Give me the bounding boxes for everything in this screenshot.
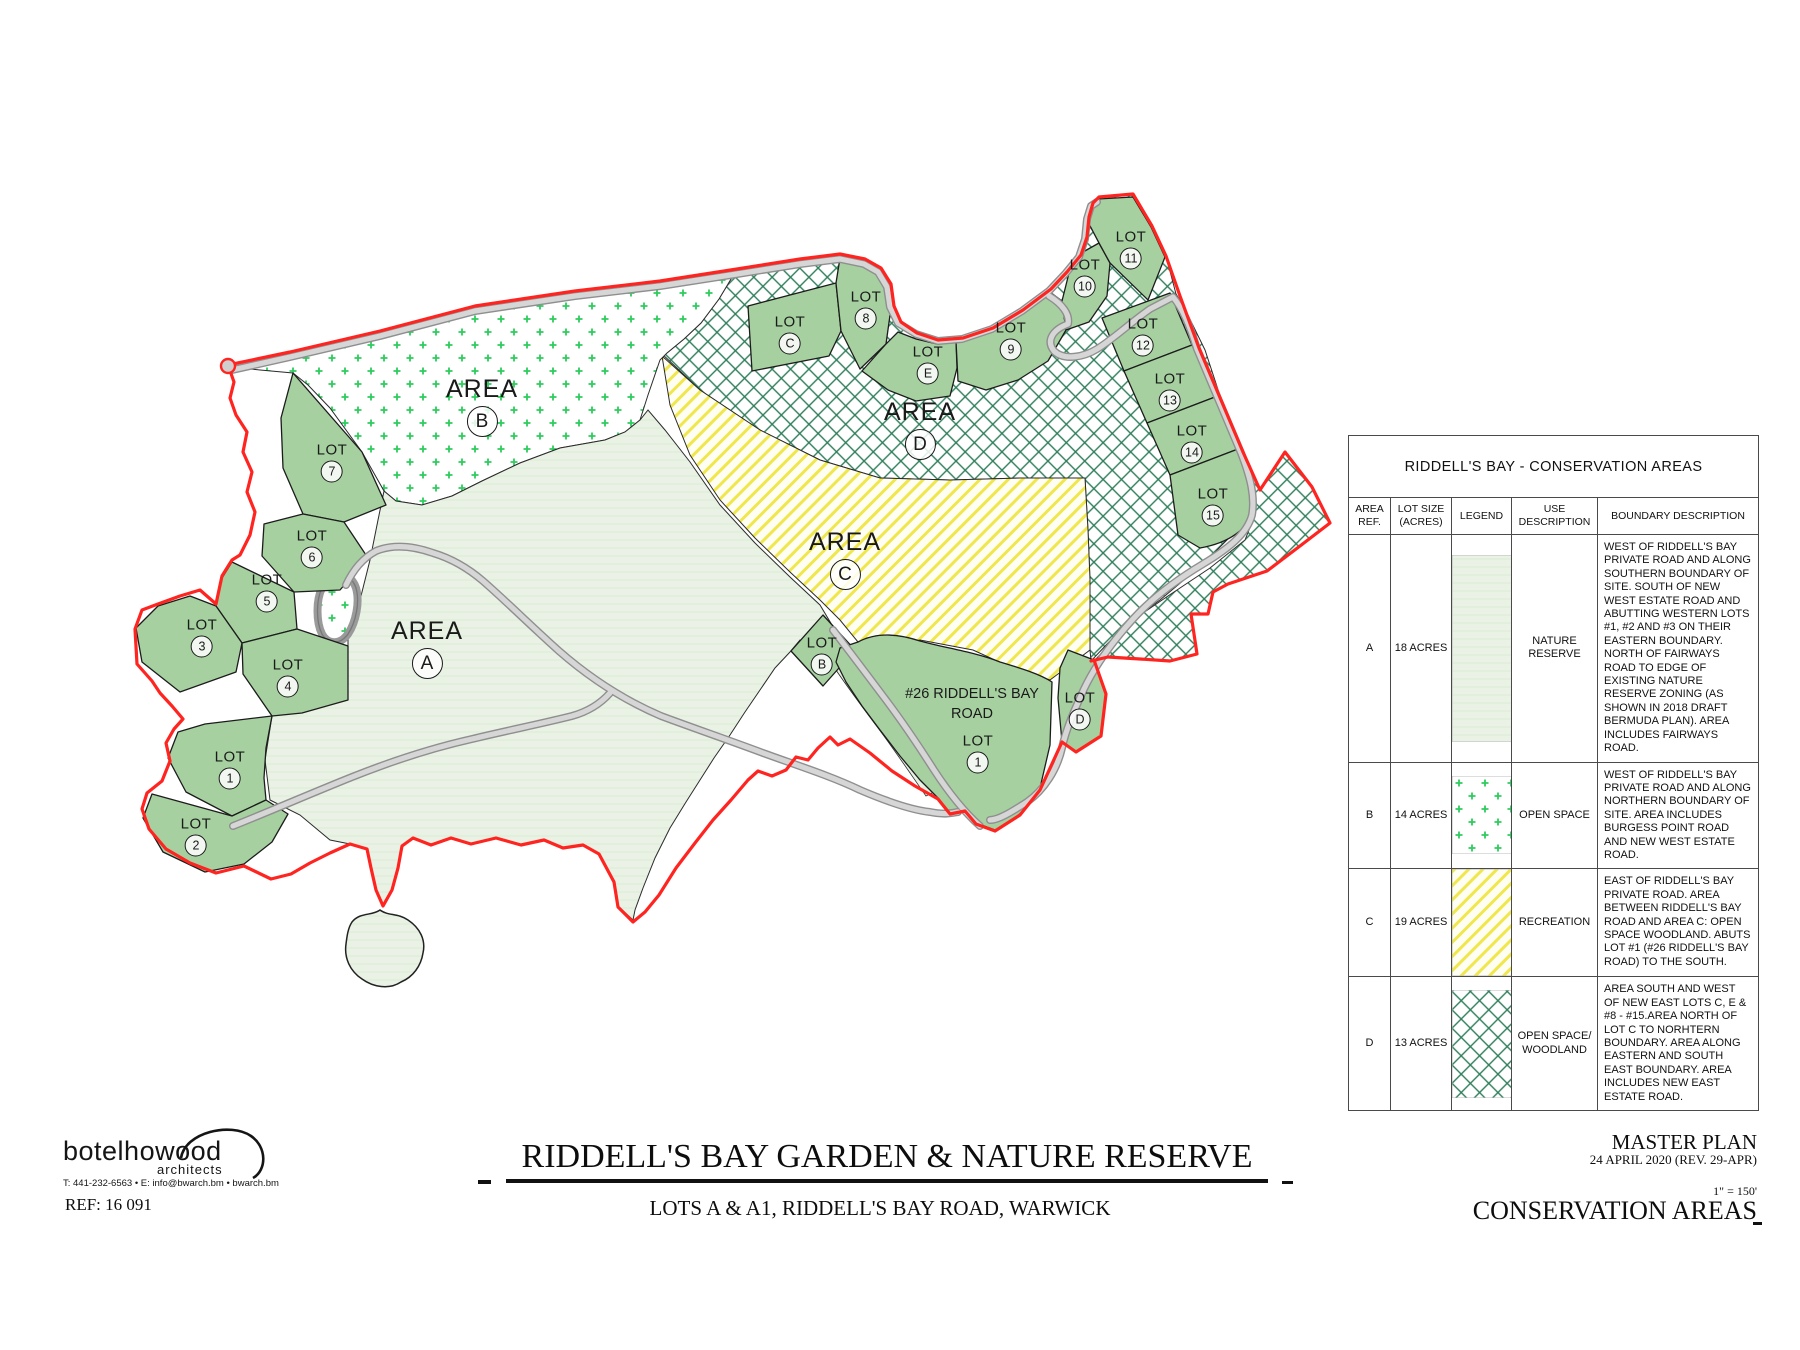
table-header-2: LEGEND <box>1452 498 1512 534</box>
firm-discipline: architects <box>157 1162 223 1177</box>
legend-swatch-open-space <box>1452 776 1511 854</box>
cell-ref: A <box>1349 535 1391 762</box>
cell-ref: D <box>1349 977 1391 1110</box>
cell-legend <box>1452 977 1512 1110</box>
island <box>346 910 424 987</box>
cell-legend <box>1452 763 1512 869</box>
table-row-D: D13 ACRESOPEN SPACE/ WOODLANDAREA SOUTH … <box>1349 977 1758 1110</box>
table-title: RIDDELL'S BAY - CONSERVATION AREAS <box>1349 436 1758 498</box>
plan-sheet-name: CONSERVATION AREAS <box>1473 1196 1757 1226</box>
cell-use: NATURE RESERVE <box>1512 535 1598 762</box>
table-row-B: B14 ACRESOPEN SPACEWEST OF RIDDELL'S BAY… <box>1349 763 1758 870</box>
cell-ref: B <box>1349 763 1391 869</box>
cell-size: 14 ACRES <box>1391 763 1452 869</box>
table-body: A18 ACRESNATURE RESERVEWEST OF RIDDELL'S… <box>1349 535 1758 1110</box>
cell-legend <box>1452 869 1512 976</box>
road-end-knob <box>221 359 235 373</box>
cell-size: 13 ACRES <box>1391 977 1452 1110</box>
cell-ref: C <box>1349 869 1391 976</box>
legend-swatch-recreation <box>1452 869 1511 976</box>
table-header-4: BOUNDARY DESCRIPTION <box>1598 498 1758 534</box>
cell-boundary: AREA SOUTH AND WEST OF NEW EAST LOTS C, … <box>1598 977 1758 1110</box>
legend-swatch-nature-reserve <box>1452 555 1511 742</box>
cell-size: 19 ACRES <box>1391 869 1452 976</box>
plan-date: 24 APRIL 2020 (REV. 29-APR) <box>1590 1152 1757 1168</box>
lot-4 <box>242 629 348 716</box>
title-underline <box>506 1179 1268 1183</box>
title-dash-right <box>1282 1181 1293 1184</box>
drawing-subtitle: LOTS A & A1, RIDDELL'S BAY ROAD, WARWICK <box>650 1196 1111 1221</box>
table-header-1: LOT SIZE (ACRES) <box>1391 498 1452 534</box>
sheet-dash <box>1753 1222 1762 1225</box>
cell-use: RECREATION <box>1512 869 1598 976</box>
cell-use: OPEN SPACE <box>1512 763 1598 869</box>
conservation-table: RIDDELL'S BAY - CONSERVATION AREAS AREA … <box>1348 435 1759 1111</box>
drawing-ref: REF: 16 091 <box>65 1195 152 1215</box>
cell-use: OPEN SPACE/ WOODLAND <box>1512 977 1598 1110</box>
table-header-0: AREA REF. <box>1349 498 1391 534</box>
table-header-3: USE DESCRIPTION <box>1512 498 1598 534</box>
drawing-title: RIDDELL'S BAY GARDEN & NATURE RESERVE <box>522 1138 1253 1176</box>
table-row-A: A18 ACRESNATURE RESERVEWEST OF RIDDELL'S… <box>1349 535 1758 763</box>
table-header-row: AREA REF.LOT SIZE (ACRES)LEGENDUSE DESCR… <box>1349 498 1758 535</box>
firm-logo: botelhowood architects T: 441-232-6563 •… <box>63 1118 323 1188</box>
cell-boundary: WEST OF RIDDELL'S BAY PRIVATE ROAD AND A… <box>1598 763 1758 869</box>
plan-sheet: AREAAAREABAREACAREADLOT7LOT6LOT5LOT3LOT4… <box>0 0 1800 1350</box>
table-row-C: C19 ACRESRECREATIONEAST OF RIDDELL'S BAY… <box>1349 869 1758 977</box>
title-dash-left <box>478 1180 491 1184</box>
lot-1-west <box>168 716 272 816</box>
firm-contact: T: 441-232-6563 • E: info@bwarch.bm • bw… <box>63 1178 279 1189</box>
cell-boundary: EAST OF RIDDELL'S BAY PRIVATE ROAD. AREA… <box>1598 869 1758 976</box>
legend-swatch-open-space-woodland <box>1452 990 1511 1098</box>
cell-size: 18 ACRES <box>1391 535 1452 762</box>
cell-legend <box>1452 535 1512 762</box>
cell-boundary: WEST OF RIDDELL'S BAY PRIVATE ROAD AND A… <box>1598 535 1758 762</box>
